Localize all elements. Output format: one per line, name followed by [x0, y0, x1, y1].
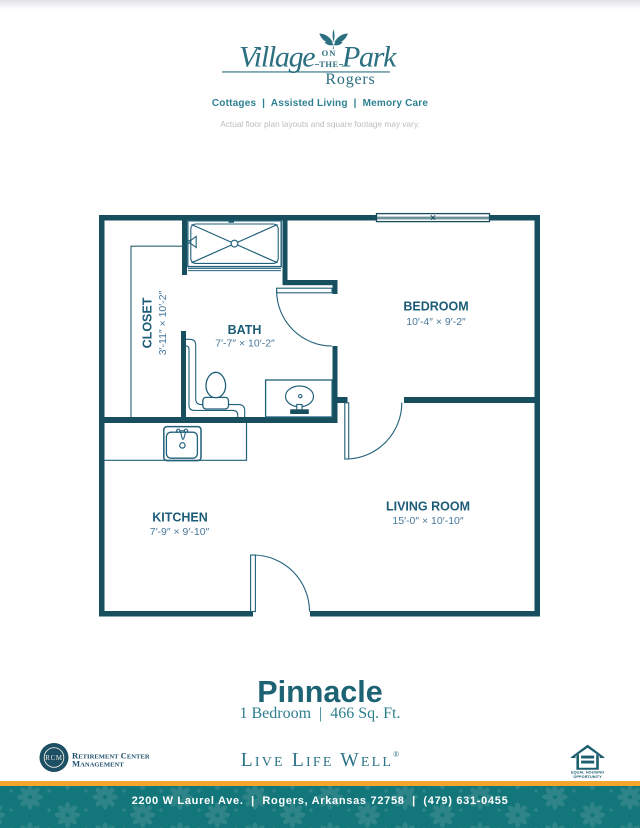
svg-text:LIVING ROOM: LIVING ROOM: [386, 500, 470, 514]
svg-text:BEDROOM: BEDROOM: [403, 300, 468, 314]
svg-text:BATH: BATH: [228, 323, 262, 337]
svg-text:15′-0″ × 10′-10″: 15′-0″ × 10′-10″: [392, 515, 463, 527]
svg-text:3′-11″ × 10′-2″: 3′-11″ × 10′-2″: [157, 290, 169, 355]
svg-text:10′-4″ × 9′-2″: 10′-4″ × 9′-2″: [406, 316, 466, 328]
svg-text:7′-9″ × 9′-10″: 7′-9″ × 9′-10″: [150, 526, 210, 538]
svg-text:KITCHEN: KITCHEN: [152, 511, 208, 525]
svg-text:7′-7″ × 10′-2″: 7′-7″ × 10′-2″: [215, 338, 275, 350]
svg-text:OPPORTUNITY: OPPORTUNITY: [573, 775, 602, 779]
svg-text:CLOSET: CLOSET: [141, 297, 155, 348]
